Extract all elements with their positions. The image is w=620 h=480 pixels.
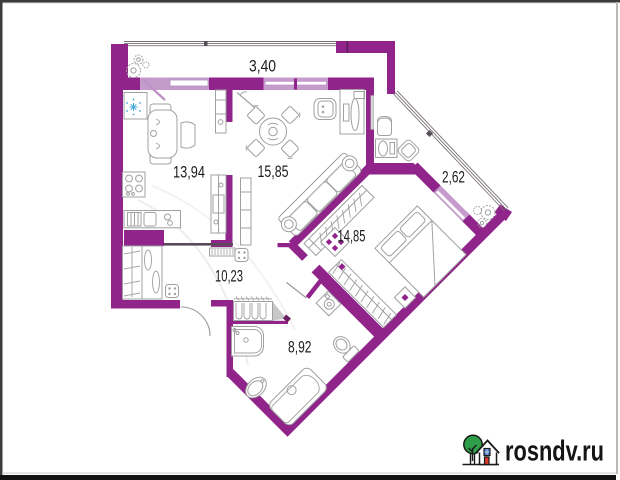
svg-text:13,94: 13,94 (173, 163, 205, 182)
svg-text:2,62: 2,62 (442, 168, 465, 187)
svg-text:15,85: 15,85 (258, 162, 289, 181)
svg-text:8,92: 8,92 (288, 338, 312, 357)
svg-text:3,40: 3,40 (249, 57, 276, 76)
svg-text:rosndv.ru: rosndv.ru (505, 436, 604, 468)
svg-text:14,85: 14,85 (338, 227, 366, 246)
svg-text:10,23: 10,23 (215, 267, 243, 286)
